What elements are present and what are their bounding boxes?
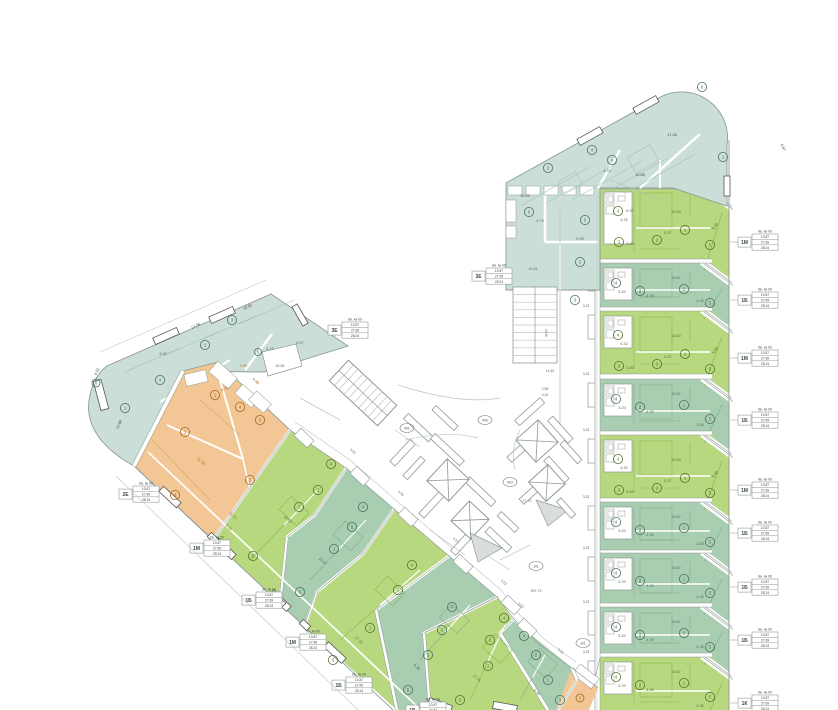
svg-text:Кв. № 00: Кв. № 00 — [758, 230, 772, 234]
svg-text:3.23: 3.23 — [583, 304, 590, 308]
svg-text:28.24: 28.24 — [761, 644, 769, 648]
svg-text:10.87: 10.87 — [671, 392, 681, 396]
svg-text:7.09: 7.09 — [239, 364, 246, 368]
svg-text:10.87: 10.87 — [761, 483, 769, 487]
svg-text:1К: 1К — [742, 701, 749, 707]
svg-text:10.87: 10.87 — [265, 593, 273, 597]
svg-text:10.87: 10.87 — [351, 323, 359, 327]
svg-text:3.23: 3.23 — [583, 546, 590, 550]
svg-text:4.33: 4.33 — [603, 169, 610, 173]
svg-text:3.20: 3.20 — [618, 634, 625, 638]
svg-text:Кв. № 00: Кв. № 00 — [306, 630, 320, 634]
svg-text:Кв. № 00: Кв. № 00 — [139, 482, 153, 486]
svg-text:1М: 1М — [741, 488, 748, 494]
svg-text:27.69: 27.69 — [495, 275, 503, 279]
svg-text:2Е: 2Е — [122, 492, 129, 498]
svg-text:5.99: 5.99 — [576, 237, 583, 241]
svg-text:Кв. № 00: Кв. № 00 — [758, 575, 772, 579]
svg-text:3.20: 3.20 — [618, 406, 625, 410]
svg-text:18.50: 18.50 — [671, 458, 681, 462]
svg-text:3.83: 3.83 — [626, 242, 633, 246]
svg-text:27.69: 27.69 — [761, 299, 769, 303]
svg-text:28.24: 28.24 — [355, 689, 363, 693]
svg-text:28.24: 28.24 — [265, 604, 273, 608]
svg-text:6.97: 6.97 — [626, 209, 633, 213]
svg-text:1Б: 1Б — [741, 638, 748, 644]
svg-text:10.87: 10.87 — [761, 526, 769, 530]
svg-text:4.39: 4.39 — [646, 533, 653, 537]
svg-text:Кв. № 00: Кв. № 00 — [758, 478, 772, 482]
svg-text:18.50: 18.50 — [671, 210, 681, 214]
svg-text:16.90: 16.90 — [544, 329, 548, 338]
svg-text:4.39: 4.39 — [646, 688, 653, 692]
svg-text:28.24: 28.24 — [761, 494, 769, 498]
svg-text:3.72: 3.72 — [266, 347, 273, 351]
svg-text:Кв. № 00: Кв. № 00 — [758, 521, 772, 525]
svg-text:4.39: 4.39 — [646, 584, 653, 588]
svg-text:10.87: 10.87 — [671, 620, 681, 624]
svg-text:28.24: 28.24 — [309, 646, 317, 650]
svg-text:Кв. № 00: Кв. № 00 — [758, 288, 772, 292]
svg-text:10.81: 10.81 — [528, 267, 538, 271]
svg-text:3.35: 3.35 — [696, 645, 703, 649]
svg-text:3.23: 3.23 — [583, 600, 590, 604]
svg-text:Кв. № 00: Кв. № 00 — [426, 698, 440, 702]
svg-text:27.69: 27.69 — [355, 684, 363, 688]
svg-text:4.39: 4.39 — [646, 410, 653, 414]
svg-text:1Б: 1Б — [741, 418, 748, 424]
svg-text:16.81: 16.81 — [275, 364, 285, 368]
svg-text:1Б: 1Б — [335, 683, 342, 689]
svg-text:27.69: 27.69 — [761, 357, 769, 361]
svg-text:28.24: 28.24 — [761, 424, 769, 428]
svg-text:10.87: 10.87 — [761, 633, 769, 637]
svg-text:27.69: 27.69 — [761, 489, 769, 493]
svg-text:27.69: 27.69 — [265, 599, 273, 603]
svg-text:27.72: 27.72 — [523, 499, 532, 503]
svg-text:10.87: 10.87 — [671, 276, 681, 280]
svg-text:28.24: 28.24 — [761, 362, 769, 366]
svg-text:17.26: 17.26 — [667, 133, 677, 137]
svg-text:28.24: 28.24 — [761, 537, 769, 541]
svg-text:10.87: 10.87 — [761, 351, 769, 355]
svg-text:1М: 1М — [289, 640, 296, 646]
svg-text:3.20: 3.20 — [618, 684, 625, 688]
svg-text:3.83: 3.83 — [626, 366, 633, 370]
svg-text:1М: 1М — [741, 356, 748, 362]
svg-text:Кв. № 00: Кв. № 00 — [352, 673, 366, 677]
svg-text:4.32: 4.32 — [620, 342, 627, 346]
svg-text:10.87: 10.87 — [429, 703, 437, 707]
svg-text:27.69: 27.69 — [761, 639, 769, 643]
svg-text:3Е: 3Е — [475, 274, 482, 280]
svg-text:12.68: 12.68 — [635, 173, 645, 177]
svg-text:406: 406 — [482, 419, 488, 423]
svg-text:3.35: 3.35 — [696, 704, 703, 708]
svg-text:4.32: 4.32 — [620, 218, 627, 222]
svg-text:3.20: 3.20 — [618, 580, 625, 584]
svg-text:101: 101 — [533, 565, 539, 569]
svg-text:28.24: 28.24 — [142, 498, 150, 502]
svg-text:1М: 1М — [741, 240, 748, 246]
svg-text:3.35: 3.35 — [696, 299, 703, 303]
svg-text:3.35: 3.35 — [696, 542, 703, 546]
svg-text:10.87: 10.87 — [355, 678, 363, 682]
svg-text:3.23: 3.23 — [583, 428, 590, 432]
svg-text:Кв. № 00: Кв. № 00 — [758, 346, 772, 350]
svg-text:Кв. № 00: Кв. № 00 — [758, 408, 772, 412]
svg-text:101: 101 — [580, 642, 586, 646]
svg-text:3Е: 3Е — [331, 328, 338, 334]
svg-text:403: 403 — [507, 481, 513, 485]
svg-text:5.37: 5.37 — [664, 355, 671, 359]
svg-text:5.37: 5.37 — [664, 479, 671, 483]
svg-text:10.87: 10.87 — [761, 293, 769, 297]
svg-text:3.35: 3.35 — [696, 595, 703, 599]
svg-text:14.40: 14.40 — [546, 369, 555, 373]
svg-text:597.72: 597.72 — [531, 589, 542, 593]
svg-text:10.87: 10.87 — [761, 580, 769, 584]
svg-text:3.92: 3.92 — [159, 352, 166, 356]
svg-text:1М: 1М — [193, 546, 200, 552]
svg-text:Кв. № 00: Кв. № 00 — [492, 264, 506, 268]
svg-text:27.69: 27.69 — [761, 532, 769, 536]
svg-text:3.23: 3.23 — [583, 372, 590, 376]
svg-text:2.58: 2.58 — [542, 387, 549, 391]
svg-text:Кв. № 00: Кв. № 00 — [210, 536, 224, 540]
svg-text:27.69: 27.69 — [309, 641, 317, 645]
svg-text:27.69: 27.69 — [761, 241, 769, 245]
svg-text:28.24: 28.24 — [351, 334, 359, 338]
svg-text:3.20: 3.20 — [618, 529, 625, 533]
svg-text:10.87: 10.87 — [142, 487, 150, 491]
svg-text:3.23: 3.23 — [583, 650, 590, 654]
svg-text:1Б: 1Б — [741, 531, 748, 537]
svg-text:4.39: 4.39 — [646, 294, 653, 298]
svg-text:10.87: 10.87 — [671, 566, 681, 570]
svg-text:Кв. № 00: Кв. № 00 — [758, 628, 772, 632]
svg-text:27.69: 27.69 — [761, 419, 769, 423]
svg-text:18.50: 18.50 — [671, 334, 681, 338]
svg-text:10.87: 10.87 — [495, 269, 503, 273]
svg-text:Кв. № 00: Кв. № 00 — [262, 588, 276, 592]
svg-text:4.73: 4.73 — [536, 219, 543, 223]
svg-text:28.24: 28.24 — [761, 304, 769, 308]
svg-text:6.97: 6.97 — [296, 341, 303, 345]
svg-text:3.23: 3.23 — [583, 495, 590, 499]
svg-text:28.24: 28.24 — [213, 552, 221, 556]
svg-text:10.87: 10.87 — [309, 635, 317, 639]
svg-text:27.69: 27.69 — [351, 329, 359, 333]
svg-text:10.92: 10.92 — [520, 194, 530, 198]
svg-text:3.35: 3.35 — [696, 423, 703, 427]
svg-text:27.69: 27.69 — [213, 547, 221, 551]
svg-text:5.37: 5.37 — [664, 231, 671, 235]
svg-text:Кв. № 00: Кв. № 00 — [348, 318, 362, 322]
svg-text:10.87: 10.87 — [761, 235, 769, 239]
svg-text:10.87: 10.87 — [671, 515, 681, 519]
svg-text:Кв. № 00: Кв. № 00 — [758, 691, 772, 695]
svg-text:10.87: 10.87 — [761, 413, 769, 417]
svg-text:28.24: 28.24 — [495, 280, 503, 284]
svg-text:4.32: 4.32 — [620, 466, 627, 470]
svg-text:3.20: 3.20 — [618, 290, 625, 294]
svg-text:1Б: 1Б — [741, 298, 748, 304]
svg-text:3.83: 3.83 — [626, 490, 633, 494]
svg-text:27.69: 27.69 — [761, 702, 769, 706]
svg-text:10.87: 10.87 — [671, 670, 681, 674]
svg-text:27.69: 27.69 — [142, 493, 150, 497]
svg-text:1Б: 1Б — [741, 585, 748, 591]
svg-text:10.87: 10.87 — [213, 541, 221, 545]
svg-text:28.24: 28.24 — [761, 591, 769, 595]
svg-text:27.69: 27.69 — [761, 586, 769, 590]
svg-text:4.20: 4.20 — [542, 393, 549, 397]
svg-text:401: 401 — [404, 427, 410, 431]
svg-text:28.24: 28.24 — [761, 246, 769, 250]
svg-text:4.39: 4.39 — [646, 638, 653, 642]
svg-text:10.87: 10.87 — [761, 696, 769, 700]
svg-text:1Б: 1Б — [245, 598, 252, 604]
